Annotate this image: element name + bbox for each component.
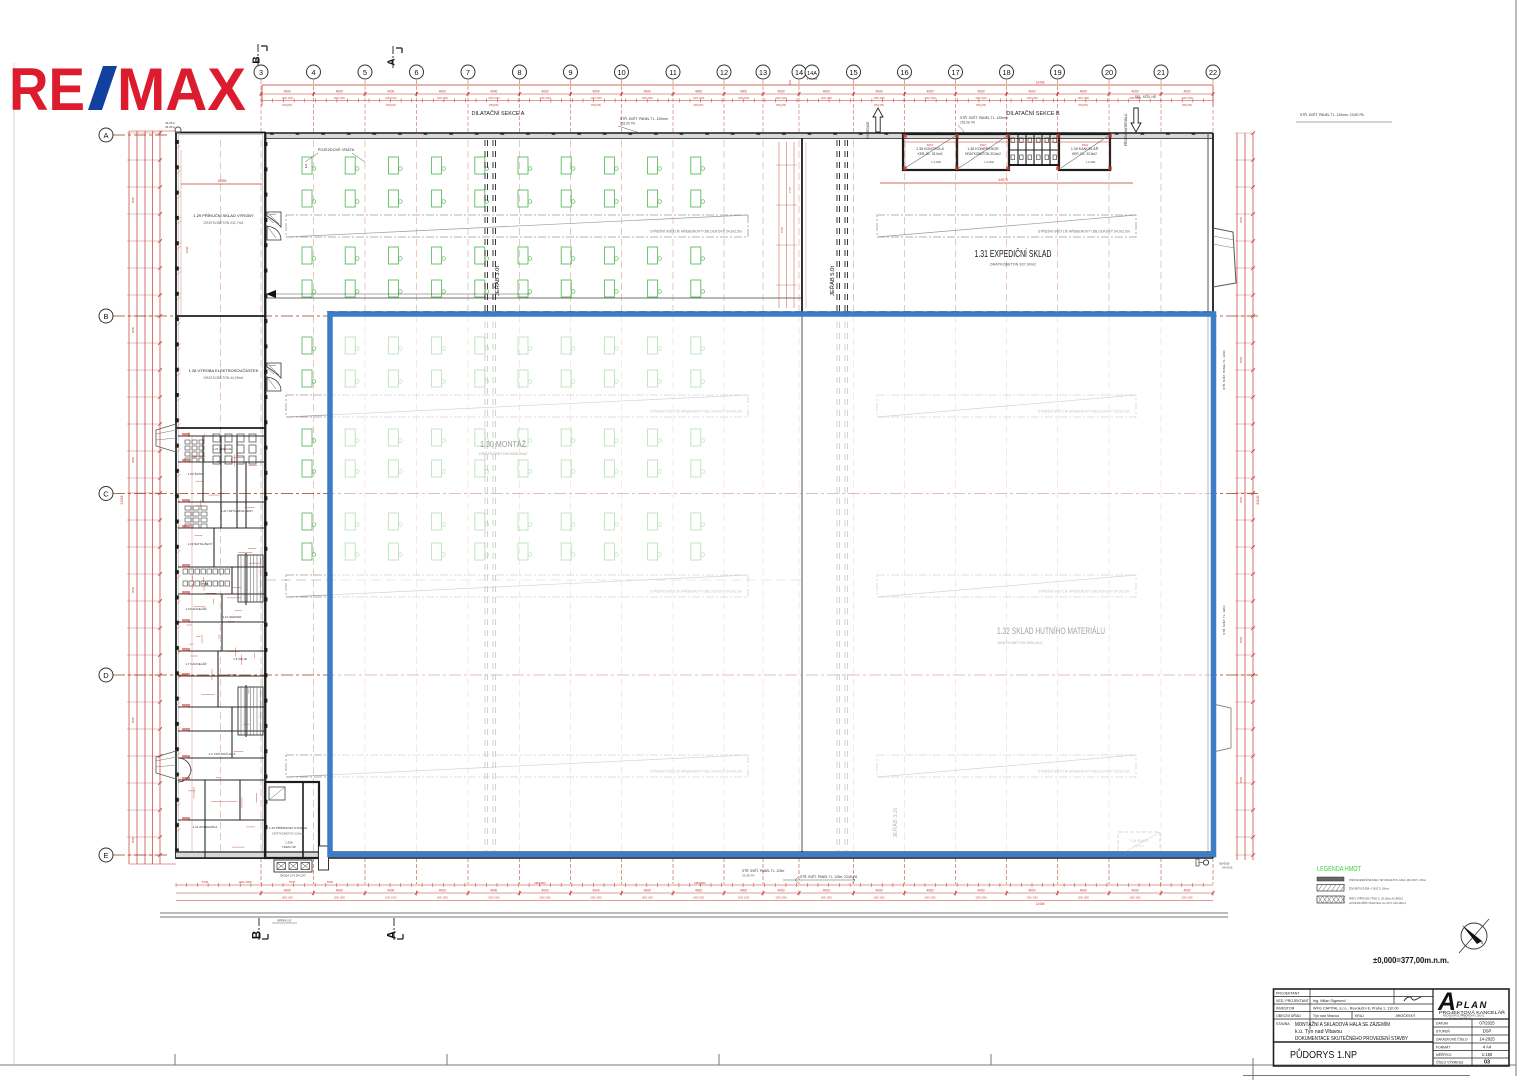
- svg-text:1980 1980: 1980 1980: [821, 97, 833, 100]
- svg-text:4000: 4000: [644, 89, 651, 93]
- svg-text:253,0E PA: 253,0E PA: [960, 121, 976, 125]
- svg-text:4000: 4000: [777, 89, 784, 93]
- svg-text:S: S: [1481, 940, 1484, 945]
- svg-text:±0,000=377,00m.n.m.: ±0,000=377,00m.n.m.: [1373, 956, 1449, 965]
- svg-text:1980 1980: 1980 1980: [873, 897, 885, 900]
- svg-text:4000: 4000: [490, 89, 497, 93]
- svg-text:1.4-06E: 1.4-06E: [1086, 160, 1096, 164]
- svg-text:4000: 4000: [1131, 89, 1138, 93]
- svg-text:4000: 4000: [695, 89, 702, 93]
- svg-text:4000: 4000: [823, 889, 830, 893]
- svg-text:S5-05.B: S5-05.B: [1222, 866, 1233, 870]
- svg-text:7: 7: [466, 68, 470, 77]
- svg-text:STŘEŠNÍ SVĚTLÍK HŘEBENOVÝ OBLO: STŘEŠNÍ SVĚTLÍK HŘEBENOVÝ OBLOUKOVÝ 54,0…: [650, 229, 743, 234]
- svg-text:5206: 5206: [1239, 216, 1243, 223]
- svg-text:INVESTOR: INVESTOR: [1276, 1007, 1295, 1011]
- svg-text:STAVBA: STAVBA: [1276, 1022, 1290, 1026]
- svg-text:6325: 6325: [327, 880, 334, 884]
- svg-text:1980 1980: 1980 1980: [1026, 97, 1038, 100]
- svg-text:MĚŘÍTKO: MĚŘÍTKO: [1436, 1052, 1452, 1057]
- svg-text:RE: RE: [9, 56, 85, 123]
- svg-text:DRÁTKOBETON 2906,3m2: DRÁTKOBETON 2906,3m2: [998, 641, 1043, 645]
- svg-text:C: C: [103, 489, 109, 498]
- svg-text:03: 03: [1484, 1060, 1490, 1066]
- svg-text:4: 4: [311, 68, 315, 77]
- svg-text:4000: 4000: [336, 889, 343, 893]
- svg-text:B: B: [103, 312, 108, 321]
- svg-text:1.33A: 1.33A: [285, 841, 293, 845]
- svg-text:1.35 KONTROLA: 1.35 KONTROLA: [916, 147, 944, 151]
- svg-text:POJEZDOVÉ VRÁTA: POJEZDOVÉ VRÁTA: [318, 147, 355, 152]
- svg-text:4000: 4000: [740, 889, 747, 893]
- svg-text:M8Q(M8): M8Q(M8): [976, 104, 986, 107]
- svg-text:5: 5: [363, 68, 367, 77]
- svg-text:KRAJ: KRAJ: [1355, 1014, 1364, 1018]
- svg-text:6: 6: [414, 68, 418, 77]
- svg-text:1.8 ÚKLID: 1.8 ÚKLID: [233, 656, 248, 661]
- svg-text:M8Q(M8): M8Q(M8): [282, 104, 292, 107]
- svg-text:1980 1980: 1980 1980: [1129, 897, 1141, 900]
- svg-text:OBECNÍ ÚŘAD: OBECNÍ ÚŘAD: [1276, 1013, 1301, 1018]
- svg-text:JEŘÁB 3.0t: JEŘÁB 3.0t: [493, 266, 501, 296]
- svg-text:1.2 VSTUPNÍ HALA: 1.2 VSTUPNÍ HALA: [209, 752, 236, 756]
- svg-text:1000 1000: 1000 1000: [238, 880, 252, 884]
- svg-text:3610: 3610: [980, 143, 987, 147]
- svg-text:3610: 3610: [927, 143, 934, 147]
- svg-text:10: 10: [617, 68, 625, 77]
- svg-text:1.7 KANCELÁŘ: 1.7 KANCELÁŘ: [185, 661, 207, 666]
- svg-text:STŘ. SVĚT. TL. 120m: STŘ. SVĚT. TL. 120m: [1221, 605, 1226, 635]
- svg-text:PROJEKTOVÁ KANCELÁŘ: PROJEKTOVÁ KANCELÁŘ: [1439, 1010, 1505, 1015]
- svg-text:1: 1: [305, 164, 308, 170]
- svg-text:1980 1980: 1980 1980: [334, 897, 346, 900]
- svg-text:WFG CAPITAL s.r.o., Revoluční: WFG CAPITAL s.r.o., Revoluční 8, Praha 1…: [1313, 1007, 1399, 1011]
- svg-text:1980 1980: 1980 1980: [385, 897, 397, 900]
- svg-text:MAX: MAX: [117, 56, 246, 123]
- svg-text:4000: 4000: [777, 889, 784, 893]
- svg-text:1980 1980: 1980 1980: [590, 97, 602, 100]
- svg-text:4000: 4000: [977, 889, 984, 893]
- svg-text:1.14 ZASEDAČKA: 1.14 ZASEDAČKA: [193, 824, 218, 829]
- svg-text:DILATAČNÍ SEKCE A: DILATAČNÍ SEKCE A: [472, 110, 525, 117]
- svg-text:4000: 4000: [695, 889, 702, 893]
- svg-text:A: A: [387, 931, 399, 939]
- svg-text:21396: 21396: [120, 495, 124, 504]
- svg-text:VED. PROJEKTANT: VED. PROJEKTANT: [1276, 999, 1310, 1003]
- svg-text:ŠKODA CYV DIV.CKÝ: ŠKODA CYV DIV.CKÝ: [280, 873, 306, 878]
- svg-text:DOKUMENTACE SKUTEČNÉHO PROVEDE: DOKUMENTACE SKUTEČNÉHO PROVEDENÍ STAVBY: [1295, 1035, 1408, 1042]
- svg-text:1980 1980: 1980 1980: [924, 897, 936, 900]
- svg-text:PŮDORYS 1.NP: PŮDORYS 1.NP: [1290, 1048, 1357, 1061]
- svg-text:9580: 9580: [780, 226, 784, 233]
- svg-text:1.9 KANCELÁŘ: 1.9 KANCELÁŘ: [185, 606, 207, 611]
- svg-text:1980 1980: 1980 1980: [738, 97, 750, 100]
- svg-text:1.36 KOMPRESOR: 1.36 KOMPRESOR: [967, 147, 999, 151]
- svg-text:A: A: [103, 131, 108, 140]
- svg-text:1.21 UMÝVÁRNA ŽENY: 1.21 UMÝVÁRNA ŽENY: [221, 508, 253, 513]
- svg-text:1.28 VÝROBA ELEKTROSOUČÁSTEK: 1.28 VÝROBA ELEKTROSOUČÁSTEK: [189, 368, 259, 373]
- svg-text:ČÍSLO VÝKRESU: ČÍSLO VÝKRESU: [1436, 1060, 1464, 1065]
- svg-text:DRÁTKOBETON 33,0m2: DRÁTKOBETON 33,0m2: [965, 152, 1001, 156]
- svg-text:9: 9: [568, 68, 572, 77]
- svg-text:1.22 JÍDELNA: 1.22 JÍDELNA: [212, 447, 231, 451]
- svg-text:B: B: [252, 931, 264, 939]
- svg-text:4000: 4000: [977, 89, 984, 93]
- svg-text:7678: 7678: [289, 880, 296, 884]
- svg-text:KER. DL. 33,0m2: KER. DL. 33,0m2: [1072, 152, 1097, 156]
- svg-text:5206: 5206: [1239, 636, 1243, 643]
- svg-text:1.30 MONTÁŽ: 1.30 MONTÁŽ: [480, 439, 526, 449]
- svg-text:STŘ. SVĚT. PANEL TL. 120mm: STŘ. SVĚT. PANEL TL. 120mm: [960, 115, 1008, 120]
- svg-text:M8Q(M8): M8Q(M8): [386, 104, 396, 107]
- svg-text:M8Q(M8): M8Q(M8): [591, 104, 601, 107]
- svg-text:FORMÁT: FORMÁT: [1436, 1045, 1450, 1049]
- svg-text:4000: 4000: [131, 196, 135, 203]
- svg-text:1980 1980: 1980 1980: [334, 97, 346, 100]
- svg-text:14: 14: [795, 68, 803, 77]
- svg-text:M8Q(M8): M8Q(M8): [1182, 104, 1192, 107]
- svg-text:JIHOČESKÝ: JIHOČESKÝ: [1395, 1013, 1416, 1018]
- svg-text:21: 21: [1157, 68, 1165, 77]
- svg-text:4000: 4000: [1028, 889, 1035, 893]
- svg-text:4000: 4000: [490, 889, 497, 893]
- svg-text:STŘ. SVĚT. PANEL TL. 120m: STŘ. SVĚT. PANEL TL. 120m: [742, 868, 785, 873]
- svg-text:16: 16: [900, 68, 908, 77]
- svg-text:2230: 2230: [185, 246, 189, 253]
- svg-text:Ing. Milan Sigmund: Ing. Milan Sigmund: [1313, 999, 1346, 1003]
- svg-text:1980 1980: 1980 1980: [1181, 897, 1193, 900]
- svg-text:1980 1980: 1980 1980: [775, 97, 787, 100]
- svg-text:1980 1980: 1980 1980: [488, 897, 500, 900]
- svg-text:4000: 4000: [926, 89, 933, 93]
- svg-text:07/2025: 07/2025: [1479, 1021, 1495, 1026]
- svg-text:43-05.A: 43-05.A: [165, 125, 175, 129]
- svg-text:253,0E PA: 253,0E PA: [620, 122, 636, 126]
- svg-text:STUPEŇ: STUPEŇ: [1436, 1030, 1450, 1034]
- svg-text:JEŘÁB 5.0t: JEŘÁB 5.0t: [828, 266, 836, 296]
- svg-text:STĚNOVÉ SENDVIČOVÉ PANELY, TEP: STĚNOVÉ SENDVIČOVÉ PANELY, TEP. IZOLACE …: [1349, 877, 1427, 882]
- svg-text:12: 12: [720, 68, 728, 77]
- svg-text:1980 1980: 1980 1980: [924, 97, 936, 100]
- svg-text:1980 1980: 1980 1980: [642, 97, 654, 100]
- svg-text:1980 1980: 1980 1980: [738, 897, 750, 900]
- svg-text:19: 19: [1053, 68, 1061, 77]
- svg-text:M8Q(M8): M8Q(M8): [535, 881, 546, 885]
- svg-text:4000: 4000: [926, 889, 933, 893]
- svg-text:4000: 4000: [1183, 889, 1190, 893]
- svg-text:(ALT.DŘ SDK PŘÍČKY KNAUF W111,: (ALT.DŘ SDK PŘÍČKY KNAUF W111, 112, 115 …: [1349, 900, 1406, 905]
- svg-text:4000: 4000: [387, 889, 394, 893]
- svg-text:DSP: DSP: [1483, 1029, 1492, 1034]
- svg-text:1980 1980: 1980 1980: [1078, 897, 1090, 900]
- svg-text:14A: 14A: [807, 71, 817, 77]
- svg-text:DRÁTKOBETON 2,08m2: DRÁTKOBETON 2,08m2: [272, 832, 304, 836]
- svg-text:B: B: [252, 56, 263, 63]
- svg-text:4000: 4000: [387, 89, 394, 93]
- svg-text:4000: 4000: [740, 89, 747, 93]
- svg-text:5206: 5206: [1239, 776, 1243, 783]
- svg-text:Týn nad Vltavou: Týn nad Vltavou: [1313, 1014, 1339, 1018]
- svg-text:4000: 4000: [131, 326, 135, 333]
- svg-text:M8Q(M8): M8Q(M8): [695, 881, 706, 885]
- svg-text:M8Q(M8): M8Q(M8): [693, 104, 703, 107]
- svg-text:D: D: [103, 671, 109, 680]
- svg-text:4000: 4000: [439, 89, 446, 93]
- svg-text:8: 8: [517, 68, 521, 77]
- svg-text:1980 1980: 1980 1980: [975, 897, 987, 900]
- svg-text:4000: 4000: [541, 889, 548, 893]
- svg-text:1.29 PŘÍRUČNÍ SKLAD VÝROBY: 1.29 PŘÍRUČNÍ SKLAD VÝROBY: [193, 213, 254, 218]
- svg-text:4000: 4000: [1080, 889, 1087, 893]
- svg-text:STŘ. SVĚT. PANEL TL. 120mm, 23: STŘ. SVĚT. PANEL TL. 120mm, 23,0E PA: [1300, 112, 1364, 117]
- svg-text:1980 1980: 1980 1980: [642, 897, 654, 900]
- svg-text:1:150: 1:150: [1482, 1052, 1493, 1057]
- svg-text:4000: 4000: [541, 89, 548, 93]
- svg-text:STŘ. SVĚT. PANEL TL. 120m: STŘ. SVĚT. PANEL TL. 120m: [1221, 350, 1226, 390]
- svg-text:4000: 4000: [644, 889, 651, 893]
- svg-text:1980 1980: 1980 1980: [539, 97, 551, 100]
- svg-text:OPĚRA 2/3: OPĚRA 2/3: [277, 918, 292, 923]
- svg-text:1980 1980: 1980 1980: [775, 897, 787, 900]
- svg-text:ŽDVO BETON Z:8D/8 + C16/20 TL: ŽDVO BETON Z:8D/8 + C16/20 TL. 160mm: [1349, 886, 1390, 891]
- svg-text:1980 1980: 1980 1980: [1129, 97, 1141, 100]
- svg-text:1980 1980: 1980 1980: [437, 897, 449, 900]
- svg-text:1.4-06E: 1.4-06E: [931, 160, 941, 164]
- svg-text:1980 1980: 1980 1980: [1026, 897, 1038, 900]
- svg-text:4000: 4000: [336, 89, 343, 93]
- svg-text:4000: 4000: [439, 889, 446, 893]
- svg-text:4000: 4000: [592, 89, 599, 93]
- svg-text:DILATAČNÍ SEKCE B: DILATAČNÍ SEKCE B: [1006, 110, 1060, 117]
- svg-text:4000: 4000: [1131, 889, 1138, 893]
- svg-text:4 A4: 4 A4: [1483, 1044, 1492, 1049]
- svg-text:1980 1980: 1980 1980: [282, 97, 294, 100]
- svg-text:PŘÍČKY Z PŘÍČKOVEK YTONG TL. 1: PŘÍČKY Z PŘÍČKOVEK YTONG TL. 100,150mm N…: [1349, 896, 1403, 901]
- svg-text:4000: 4000: [131, 716, 135, 723]
- svg-text:4000: 4000: [131, 836, 135, 843]
- svg-text:13: 13: [759, 68, 767, 77]
- svg-text:4000: 4000: [284, 89, 291, 93]
- svg-text:4000: 4000: [875, 889, 882, 893]
- svg-text:DRÁTKOBETON 44,08m2: DRÁTKOBETON 44,08m2: [204, 376, 244, 380]
- svg-text:4000: 4000: [1080, 89, 1087, 93]
- svg-text:4000: 4000: [284, 889, 291, 893]
- svg-text:1980 1980: 1980 1980: [821, 897, 833, 900]
- svg-text:MONTÁŽNÍ A SKLADOVÁ HALA SE ZÁ: MONTÁŽNÍ A SKLADOVÁ HALA SE ZÁZEMÍM: [1295, 1020, 1390, 1028]
- svg-text:17: 17: [951, 68, 959, 77]
- svg-text:1980 1980: 1980 1980: [693, 897, 705, 900]
- svg-text:1980 1980: 1980 1980: [975, 97, 987, 100]
- svg-text:k.ú. Týn nad Vltavou: k.ú. Týn nad Vltavou: [1295, 1029, 1342, 1035]
- svg-text:20: 20: [1105, 68, 1113, 77]
- svg-text:1.20 ŠATNY: 1.20 ŠATNY: [188, 471, 204, 476]
- svg-text:4000: 4000: [1183, 89, 1190, 93]
- svg-text:4000: 4000: [875, 89, 882, 93]
- svg-text:1980 1980: 1980 1980: [282, 897, 294, 900]
- svg-text:DATUM: DATUM: [1436, 1022, 1448, 1026]
- svg-text:1.19 ŠATNA ŽENY: 1.19 ŠATNA ŽENY: [187, 541, 212, 546]
- svg-text:M8Q(M8): M8Q(M8): [489, 104, 499, 107]
- svg-text:KER. DL. 33,0m2: KER. DL. 33,0m2: [918, 152, 943, 156]
- svg-text:14-2025: 14-2025: [1479, 1037, 1495, 1042]
- svg-text:TRAFO SP: TRAFO SP: [282, 845, 296, 849]
- svg-text:STŘ. SVĚT. PANEL TL. 120m, 23,: STŘ. SVĚT. PANEL TL. 120m, 23,0E PA: [800, 874, 858, 879]
- svg-text:M8Q(M8): M8Q(M8): [874, 104, 884, 107]
- svg-text:84040: 84040: [1256, 495, 1260, 504]
- svg-text:1980 1980: 1980 1980: [873, 97, 885, 100]
- svg-text:15: 15: [849, 68, 857, 77]
- svg-text:STŘ. SVĚT. PANEL TL. 120mm: STŘ. SVĚT. PANEL TL. 120mm: [620, 116, 668, 121]
- svg-text:18: 18: [1002, 68, 1010, 77]
- svg-text:EXPEDICE: EXPEDICE: [866, 121, 870, 139]
- svg-text:18956: 18956: [218, 179, 227, 183]
- svg-text:1.31 EXPEDIČNÍ SKLAD: 1.31 EXPEDIČNÍ SKLAD: [975, 247, 1052, 260]
- svg-text:M8Q(M8): M8Q(M8): [1078, 104, 1088, 107]
- svg-text:DRÁTKOBETON 937,90m2: DRÁTKOBETON 937,90m2: [990, 263, 1036, 267]
- svg-text:A: A: [387, 58, 398, 65]
- svg-text:2765: 2765: [788, 186, 792, 193]
- svg-text:1980 1980: 1980 1980: [590, 897, 602, 900]
- svg-text:3: 3: [259, 68, 263, 77]
- svg-text:DRÁTKOBETON 231,7m2: DRÁTKOBETON 231,7m2: [204, 221, 244, 225]
- svg-text:5206: 5206: [1239, 356, 1243, 363]
- svg-text:23,0E PA: 23,0E PA: [742, 874, 754, 878]
- svg-text:5206: 5206: [1239, 496, 1243, 503]
- svg-text:1980 1980: 1980 1980: [693, 97, 705, 100]
- svg-text:44575: 44575: [998, 178, 1008, 182]
- svg-text:12408: 12408: [1036, 81, 1045, 85]
- svg-text:4000: 4000: [823, 89, 830, 93]
- svg-text:1980 1980: 1980 1980: [1181, 97, 1193, 100]
- svg-text:1980 1980: 1980 1980: [539, 897, 551, 900]
- svg-text:4000: 4000: [1028, 89, 1035, 93]
- svg-text:LEGENDA HMOT: LEGENDA HMOT: [1317, 866, 1362, 873]
- svg-text:4000: 4000: [131, 456, 135, 463]
- svg-text:1.10 SERVER: 1.10 SERVER: [223, 615, 243, 619]
- svg-text:4000: 4000: [131, 586, 135, 593]
- svg-text:3610: 3610: [1082, 143, 1089, 147]
- svg-text:5746: 5746: [202, 880, 209, 884]
- svg-text:7458: 7458: [202, 582, 209, 586]
- svg-text:ZAKÁZKOVÉ ČÍSLO: ZAKÁZKOVÉ ČÍSLO: [1436, 1037, 1468, 1042]
- svg-text:1.32 SKLAD HUTNÍHO MATERIÁLU: 1.32 SKLAD HUTNÍHO MATERIÁLU: [997, 626, 1105, 636]
- svg-text:DRÁTKOBETON 5206,3m2: DRÁTKOBETON 5206,3m2: [479, 452, 527, 456]
- svg-text:E: E: [103, 851, 108, 860]
- svg-text:12408: 12408: [1036, 902, 1045, 906]
- svg-text:1980 1980: 1980 1980: [1078, 97, 1090, 100]
- svg-text:1.33 PŘÍPRAVNA STANICE: 1.33 PŘÍPRAVNA STANICE: [269, 825, 307, 830]
- svg-text:PROJEKTANT: PROJEKTANT: [1276, 992, 1300, 996]
- svg-text:22: 22: [1209, 68, 1217, 77]
- svg-text:4000: 4000: [592, 889, 599, 893]
- svg-text:11: 11: [669, 68, 677, 77]
- svg-text:1980 1980: 1980 1980: [437, 97, 449, 100]
- svg-text:1980 1980: 1980 1980: [385, 97, 397, 100]
- svg-text:STŘEŠNÍ SVĚTLÍK HŘEBENOVÝ OBLO: STŘEŠNÍ SVĚTLÍK HŘEBENOVÝ OBLOUKOVÝ 54,0…: [1038, 229, 1131, 234]
- svg-text:1980 1980: 1980 1980: [488, 97, 500, 100]
- svg-text:M8Q(M8): M8Q(M8): [776, 104, 786, 107]
- svg-text:PŘÍJEM MATERIÁLU: PŘÍJEM MATERIÁLU: [1123, 113, 1128, 146]
- svg-text:1.4-06E: 1.4-06E: [984, 160, 994, 164]
